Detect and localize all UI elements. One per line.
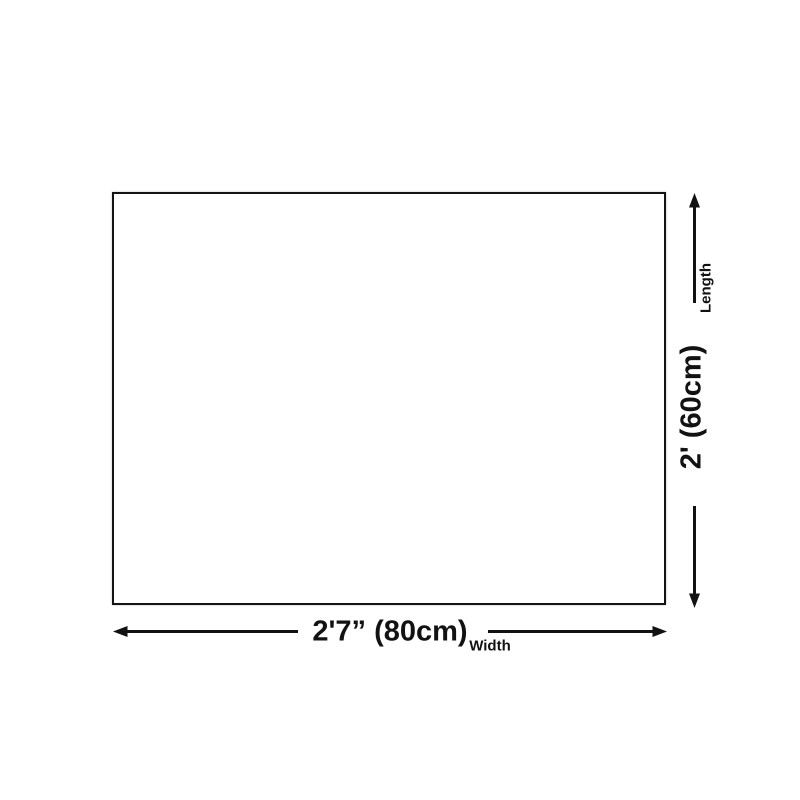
width-value: 2'7” (80cm): [312, 616, 467, 649]
arrow-down-icon: [689, 594, 700, 609]
length-value: 2' (60cm): [676, 345, 709, 470]
arrow-up-icon: [689, 193, 700, 208]
arrow-left-icon: [113, 626, 128, 637]
width-label: Width: [469, 638, 511, 655]
arrow-right-icon: [653, 626, 668, 637]
length-label: Length: [698, 263, 715, 313]
dimension-diagram: 2'7” (80cm) Width 2' (60cm) Length: [0, 0, 800, 800]
